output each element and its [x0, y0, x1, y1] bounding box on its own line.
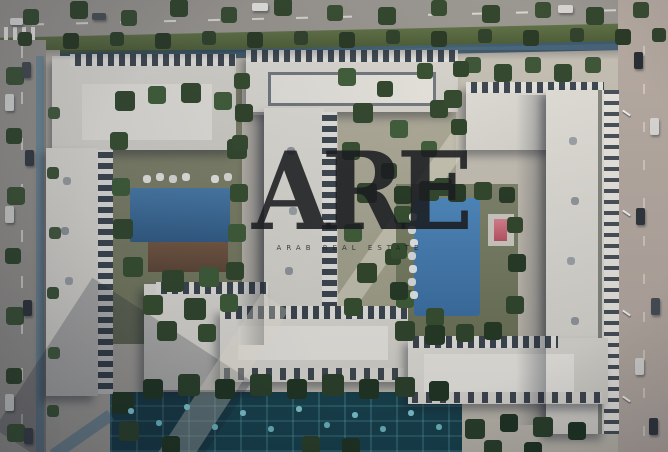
car [635, 358, 644, 375]
car [636, 208, 645, 225]
car [650, 118, 659, 135]
car [92, 13, 106, 20]
car [25, 150, 34, 166]
roof-panel-bottom-right [424, 354, 574, 392]
pink-art-installation [494, 219, 507, 241]
roof-panel-top-left [82, 84, 212, 140]
car [252, 3, 268, 11]
water-sparkles [0, 0, 2, 2]
swimming-pool-left [130, 188, 230, 242]
hedge-shadow [46, 50, 618, 60]
car [5, 94, 14, 111]
balcony-facade-bottom [224, 368, 404, 380]
car [649, 418, 658, 435]
aerial-render: ARE ARAB REAL ESTATE [0, 0, 668, 452]
car [558, 5, 573, 13]
car [651, 298, 660, 315]
car [634, 52, 643, 69]
car [24, 428, 33, 444]
swimming-pool-right [414, 198, 480, 316]
car [10, 18, 23, 25]
pool-deck-left [148, 242, 228, 272]
right-road-lane-marking [643, 8, 645, 448]
car [22, 62, 31, 78]
car [5, 394, 14, 411]
car [5, 206, 14, 223]
building-shadow [516, 95, 546, 425]
roof-panel-top-center [268, 72, 436, 106]
balcony-facade-bottom-right [412, 392, 602, 403]
crosswalk [4, 27, 40, 40]
car [23, 300, 32, 316]
